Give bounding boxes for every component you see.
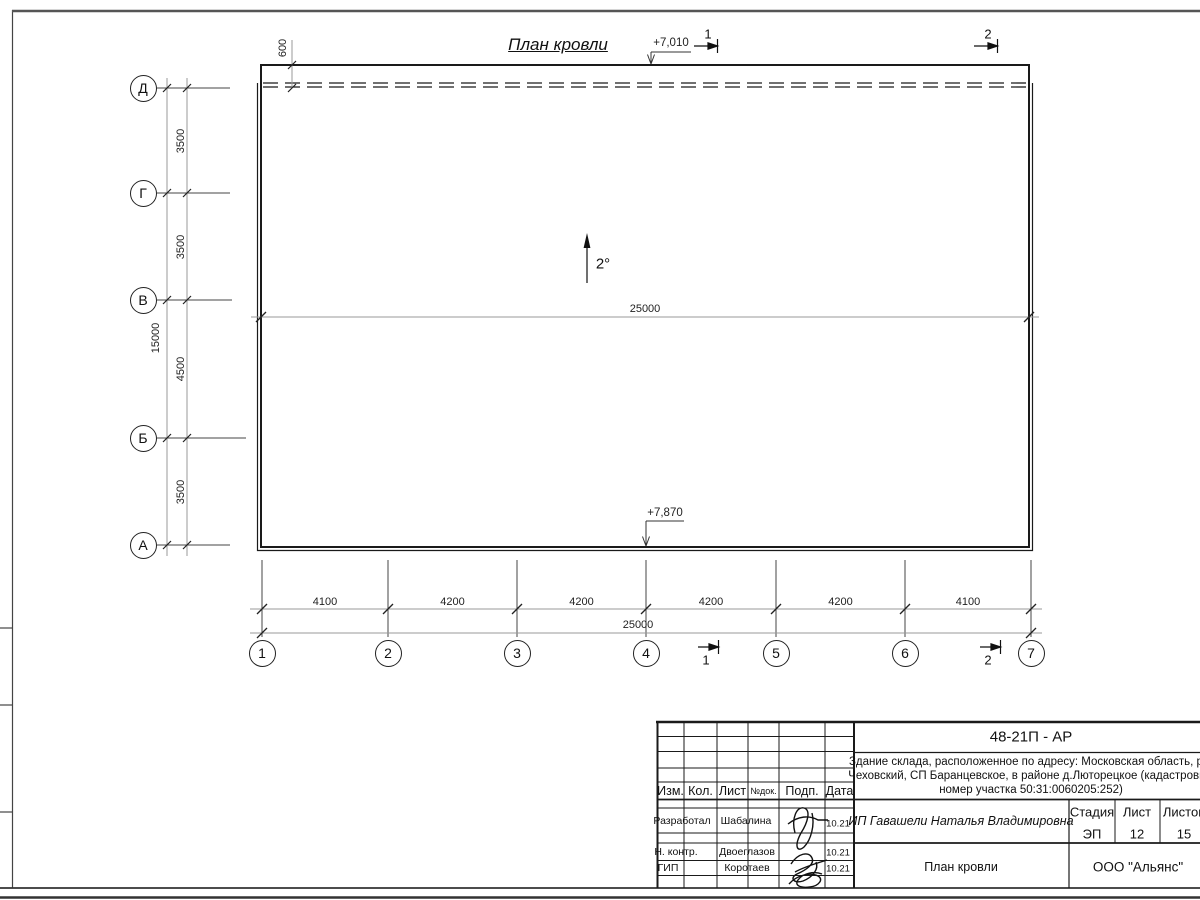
hidden-wall-dashed-line <box>263 83 1027 87</box>
tb-sheets-value: 15 <box>1177 827 1191 842</box>
tb-date: 10.21 <box>826 819 850 830</box>
tb-col-header: №док. <box>750 786 776 796</box>
drawing-title: План кровли <box>508 35 608 55</box>
tb-name: Шабалина <box>721 815 772 827</box>
row-total-dim-label: 15000 <box>150 323 162 354</box>
inner-length-label: 25000 <box>630 303 661 315</box>
row-dim-label: 3500 <box>175 479 187 503</box>
col-dim-label: 4200 <box>828 596 852 608</box>
axis-bubble-col: 7 <box>1018 640 1045 667</box>
col-dim-label: 4100 <box>956 596 980 608</box>
tb-sheet-label: Лист <box>1123 805 1151 820</box>
axis-bubble-row: Д <box>130 75 157 102</box>
elevation-leader-bottom <box>643 521 685 546</box>
tb-col-header: Кол. <box>688 784 713 798</box>
axis-bubble-col: 1 <box>249 640 276 667</box>
section-mark-number: 1 <box>704 27 711 42</box>
row-dim-label: 4500 <box>175 356 187 380</box>
tb-stage-label: Стадия <box>1070 805 1114 820</box>
elevation-top-label: +7,010 <box>653 37 689 49</box>
tb-organization: ООО "Альянс" <box>1093 859 1183 874</box>
axis-bubble-col: 5 <box>763 640 790 667</box>
section-mark-number: 1 <box>702 653 709 668</box>
elevation-bottom-label: +7,870 <box>647 507 683 519</box>
tb-description-line: Здание склада, расположенное по адресу: … <box>849 756 1200 768</box>
tb-sheets-label: Листов <box>1163 805 1200 820</box>
tb-description-line: номер участка 50:31:0060205:252) <box>939 784 1123 796</box>
col-total-dim-label: 25000 <box>623 619 654 631</box>
axis-bubble-row: В <box>130 287 157 314</box>
col-dim-label: 4100 <box>313 596 337 608</box>
row-axis-lines <box>157 88 246 545</box>
axis-bubble-col: 3 <box>504 640 531 667</box>
section-mark-number: 2 <box>984 653 991 668</box>
col-dim-label: 4200 <box>440 596 464 608</box>
elevation-leader-top <box>648 52 692 64</box>
tb-col-header: Изм. <box>657 784 684 798</box>
slope-label: 2° <box>596 256 610 273</box>
tb-description-line: Чеховский, СП Баранцевское, в районе д.Л… <box>848 770 1200 782</box>
tb-stage-value: ЭП <box>1083 827 1102 842</box>
tb-client: ИП Гавашели Наталья Владимировна <box>848 814 1073 828</box>
axis-bubble-col: 2 <box>375 640 402 667</box>
axis-bubble-col: 6 <box>892 640 919 667</box>
tb-name: Двоеглазов <box>719 846 775 858</box>
tb-sheet-value: 12 <box>1130 827 1144 842</box>
row-dim-label: 3500 <box>175 234 187 258</box>
tb-role: Разработал <box>653 815 710 827</box>
tb-col-header: Подп. <box>785 784 818 798</box>
col-dim-label: 4200 <box>699 596 723 608</box>
row-dim-label: 3500 <box>175 128 187 152</box>
tb-sheet-title: План кровли <box>924 860 998 874</box>
overhang-dim-label: 600 <box>277 39 289 57</box>
tb-col-header: Дата <box>826 784 854 798</box>
col-dim-label: 4200 <box>569 596 593 608</box>
tb-doc-code: 48-21П - АР <box>990 729 1073 746</box>
axis-bubble-row: Б <box>130 425 157 452</box>
section-mark-arrows <box>694 39 1001 654</box>
axis-bubble-col: 4 <box>633 640 660 667</box>
drawing-sheet: { "palette": { "line": "#1a1a1a", "dim_l… <box>0 0 1200 900</box>
signature-dvoeglazov-korotaev <box>789 854 827 887</box>
section-mark-number: 2 <box>984 27 991 42</box>
tb-role: ГИП <box>658 862 679 874</box>
axis-bubble-row: А <box>130 532 157 559</box>
tb-col-header: Лист <box>719 784 746 798</box>
tb-name: Коротаев <box>724 862 769 874</box>
tb-date: 10.21 <box>826 864 850 875</box>
tb-role: Н. контр. <box>654 846 697 858</box>
axis-bubble-row: Г <box>130 180 157 207</box>
slope-arrow <box>584 233 591 283</box>
tb-date: 10.21 <box>826 848 850 859</box>
